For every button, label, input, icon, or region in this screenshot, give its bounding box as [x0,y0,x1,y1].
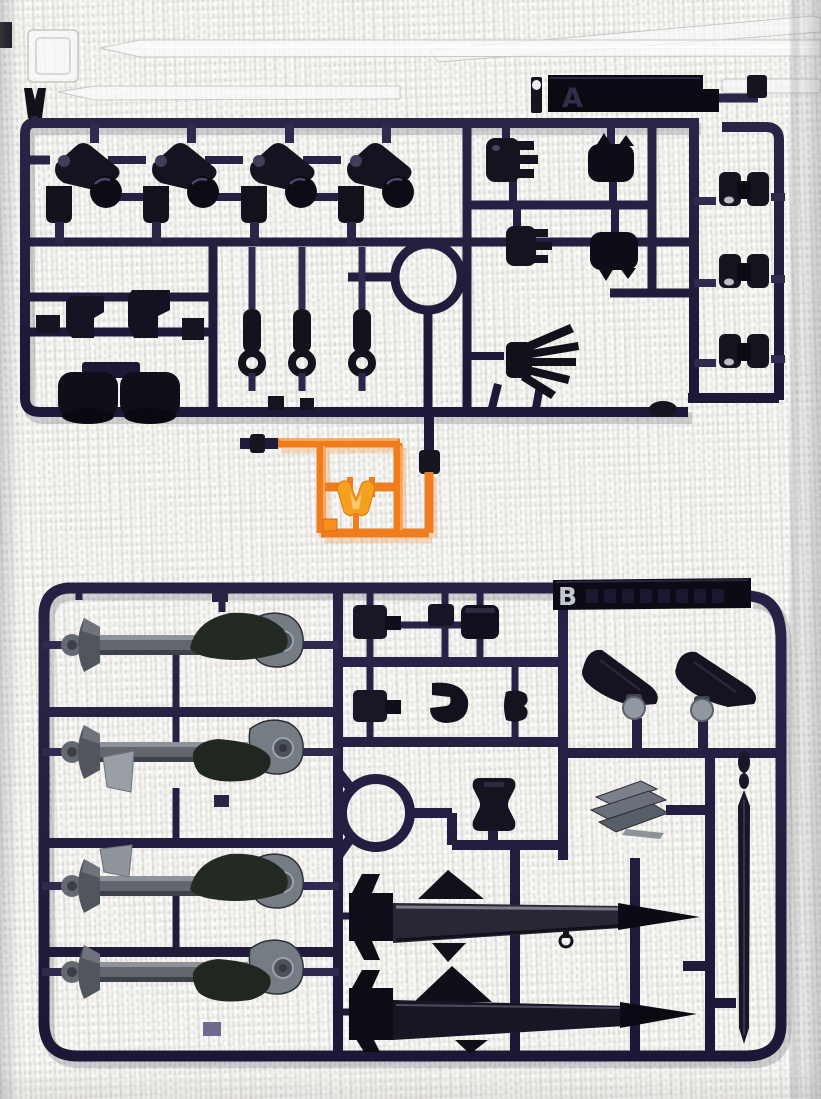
stub-part [268,396,284,410]
stub-part [300,398,314,410]
runner-ring [342,779,410,847]
gate-tab [212,590,228,602]
ball-joint-part [338,123,414,244]
sprue-b-frame [44,588,781,1056]
gate-tab [214,795,229,807]
missile-part [349,870,700,962]
fist-part [590,232,638,281]
model-kit-photo: A [0,0,821,1099]
gray-fin-part [100,845,132,877]
wing-fin-part [582,650,658,719]
connector-sleeve [419,450,440,474]
claw-part [486,138,538,182]
linkage-part [352,247,372,391]
sword-leg-part [42,854,339,913]
armor-clip-part [694,254,785,288]
orange-chip-part [323,519,337,531]
cut-runner-stub [0,22,12,48]
beam-saber-rod [100,40,821,57]
connector-sleeve [250,434,265,453]
gate-tab [203,1022,221,1036]
photo-canvas: A [0,0,821,1099]
wing-fin-part [675,652,756,721]
gray-fin-part [103,751,134,792]
sprue-a-tag: A [531,75,821,114]
ball-joint-part [241,123,317,244]
armor-clip-part [694,334,785,368]
hourglass-part [473,778,516,831]
armor-clip-part [694,172,785,206]
sprue-b: B [42,578,785,1062]
ball-joint-part [143,123,219,244]
clear-orange-sprue [240,414,440,538]
missile-part [349,966,697,1054]
sprue-a: A [25,75,821,424]
sprue-b-label: B [558,582,577,611]
ball-joint-part [46,123,122,244]
runner-drop [424,414,434,456]
runner-ring [395,244,461,310]
beam-saber-rod [58,86,400,100]
hook-part [560,931,572,947]
sprue-b-tag: B [553,578,751,611]
clear-rod-segment [722,79,821,93]
blade-part [738,751,750,1044]
thruster-part [591,781,668,839]
claw-part [506,226,552,266]
gate-lump [649,401,677,417]
sword-leg-part [42,720,339,779]
linkage-part [292,247,312,391]
linkage-part [242,247,262,391]
v-fin-part [337,481,375,529]
sprue-a-label: A [562,83,583,114]
sword-leg-part [42,613,339,672]
hand-part [506,324,579,399]
